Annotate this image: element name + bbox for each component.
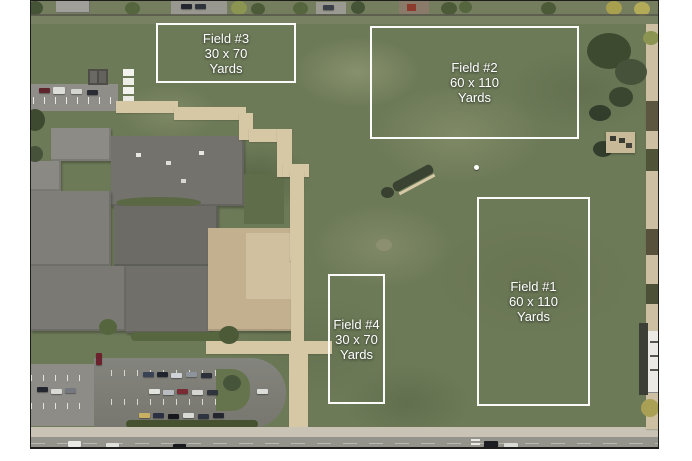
parked-car (213, 413, 224, 418)
parked-car (149, 389, 160, 394)
shed-roof (56, 1, 90, 13)
tree (606, 1, 622, 15)
field-1-label: Field #1 60 x 110 Yards (509, 279, 558, 324)
field-3-size: 30 x 70 (205, 46, 248, 61)
parked-car (186, 372, 197, 377)
parked-car (87, 90, 98, 95)
walkway (289, 353, 308, 429)
grass-worn-patch (376, 239, 392, 251)
tree (219, 326, 239, 344)
tree (223, 375, 241, 391)
canopy (90, 71, 97, 83)
crosswalk (471, 438, 480, 449)
page: Field #1 60 x 110 Yards Field #2 60 x 11… (0, 0, 692, 461)
backstop-shadow (381, 187, 394, 198)
field-3-annotation: Field #3 30 x 70 Yards (156, 23, 296, 83)
field-3-title: Field #3 (203, 31, 249, 46)
parked-car (65, 388, 76, 393)
parked-car (183, 413, 194, 418)
street-lane-line (31, 443, 659, 444)
field-4-label: Field #4 30 x 70 Yards (333, 317, 379, 362)
walkway (291, 256, 304, 346)
parked-car (192, 390, 203, 395)
tree-cluster (609, 87, 633, 107)
parked-car (51, 389, 62, 394)
tree (30, 109, 45, 131)
street-car (106, 443, 119, 449)
parked-car (71, 89, 82, 94)
parked-car (207, 390, 218, 395)
walkway (116, 101, 178, 113)
tree (99, 319, 117, 335)
school-roof (31, 191, 111, 266)
field-2-size: 60 x 110 (450, 75, 499, 90)
roof-vent (136, 153, 141, 157)
field-marker-dot (474, 165, 479, 170)
field-2-label: Field #2 60 x 110 Yards (450, 60, 499, 105)
parked-car (257, 389, 268, 394)
tree-on-path (646, 229, 659, 255)
tree (643, 31, 659, 45)
parked-car (143, 372, 154, 377)
walkway (290, 171, 304, 261)
parked-car (96, 353, 102, 365)
parking-stall-lines (31, 403, 89, 409)
aerial-photo: Field #1 60 x 110 Yards Field #2 60 x 11… (30, 0, 659, 449)
street-car (504, 443, 518, 449)
west-parking (31, 364, 94, 426)
field-1-unit: Yards (517, 309, 550, 324)
parked-car (168, 414, 179, 419)
street-car (173, 444, 186, 449)
school-roof (111, 136, 244, 206)
tree (641, 399, 659, 417)
school-roof (51, 128, 111, 161)
field-4-title: Field #4 (333, 317, 379, 332)
parking-stall-lines (111, 399, 221, 405)
courtyard-grass (244, 174, 284, 224)
parked-car (139, 413, 150, 418)
street-car (68, 441, 81, 447)
house-roof (407, 4, 416, 11)
school-roof (31, 161, 61, 191)
field-2-annotation: Field #2 60 x 110 Yards (370, 26, 579, 139)
tree-on-path (646, 149, 659, 171)
field-1-annotation: Field #1 60 x 110 Yards (477, 197, 590, 406)
field-4-annotation: Field #4 30 x 70 Yards (328, 274, 385, 404)
roof-vent (166, 161, 171, 165)
parked-car (198, 414, 209, 419)
parking-stall-lines (33, 97, 115, 104)
school-roof (126, 266, 211, 333)
mowed-strip (31, 16, 659, 24)
parked-car (37, 387, 48, 392)
tree-on-path (646, 284, 659, 304)
parked-car (201, 373, 212, 378)
tree-shadow-band (639, 323, 648, 395)
field-2-title: Field #2 (451, 60, 497, 75)
tree (231, 1, 247, 15)
parked-car (39, 88, 50, 93)
playground-equipment (610, 136, 616, 141)
street-car (484, 441, 498, 448)
tree-on-path (646, 101, 659, 131)
canopy (99, 71, 106, 83)
field-2-unit: Yards (458, 90, 491, 105)
parked-car (171, 373, 182, 378)
roof-vent (181, 179, 186, 183)
parked-car (153, 413, 164, 418)
tree (459, 1, 472, 13)
tree-shadow (589, 105, 611, 121)
parked-car (157, 372, 168, 377)
field-1-size: 60 x 110 (509, 294, 558, 309)
field-4-unit: Yards (340, 347, 373, 362)
roof-vent (199, 151, 204, 155)
field-3-label: Field #3 30 x 70 Yards (203, 31, 249, 76)
tree (30, 146, 43, 162)
school-roof (114, 206, 218, 266)
gym-roof-tan (246, 233, 292, 299)
tree-cluster (615, 59, 647, 85)
parking-stall-lines (31, 375, 89, 381)
walkway (174, 107, 246, 120)
equipment-panels (123, 69, 134, 76)
parked-car (195, 4, 206, 9)
parked-car (177, 389, 188, 394)
field-4-size: 30 x 70 (335, 332, 378, 347)
parked-car (323, 5, 334, 10)
east-building-detail (650, 341, 658, 343)
field-3-unit: Yards (210, 61, 243, 76)
parked-car (181, 4, 192, 9)
parked-car (163, 390, 174, 395)
tree (351, 1, 365, 14)
shrub-row (131, 332, 231, 341)
parked-car (53, 87, 65, 94)
field-1-title: Field #1 (510, 279, 556, 294)
